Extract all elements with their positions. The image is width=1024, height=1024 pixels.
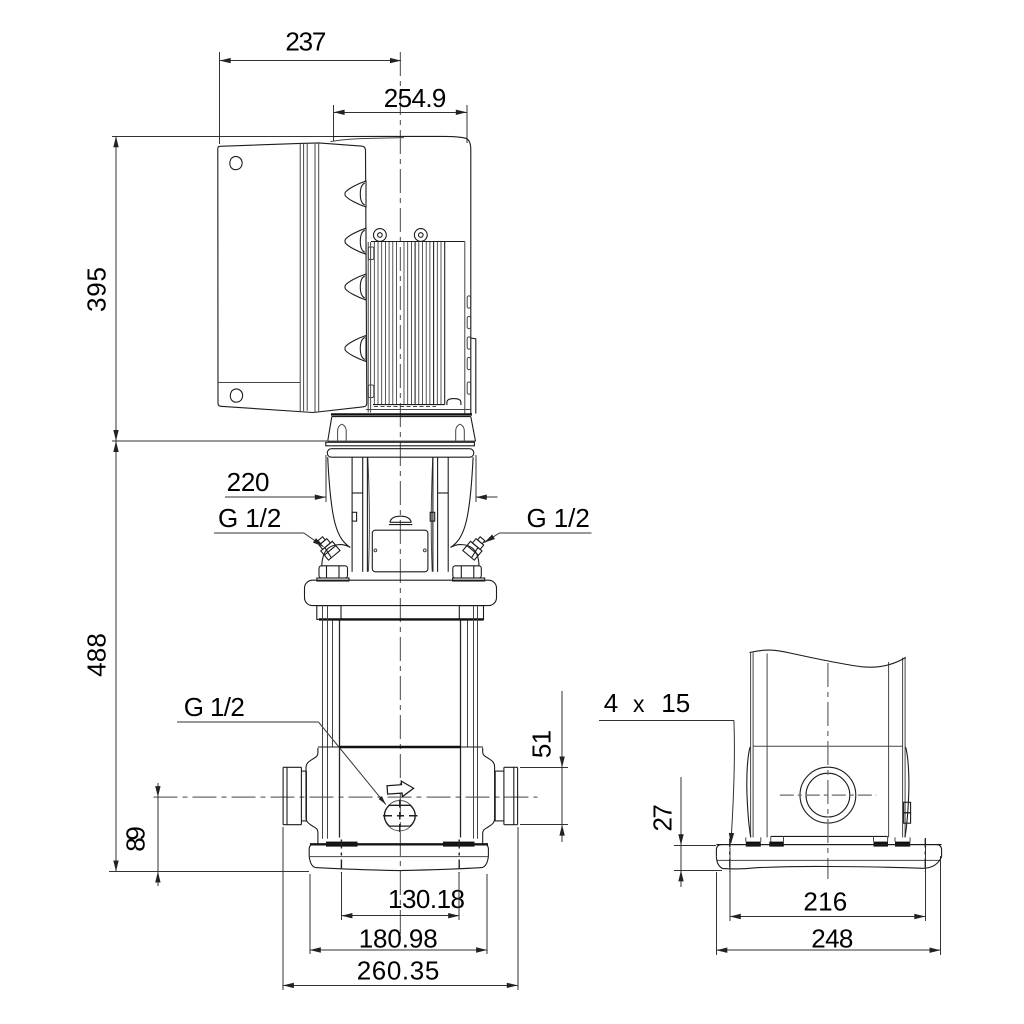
svg-text:260.35: 260.35: [357, 956, 440, 986]
svg-text:15: 15: [661, 688, 690, 718]
svg-text:130.18: 130.18: [388, 884, 465, 914]
svg-text:488: 488: [82, 633, 112, 677]
svg-text:89: 89: [121, 826, 151, 852]
svg-text:4: 4: [604, 688, 618, 718]
svg-text:220: 220: [227, 467, 270, 497]
svg-text:x: x: [633, 691, 645, 717]
svg-text:G 1/2: G 1/2: [218, 503, 281, 533]
svg-text:180.98: 180.98: [359, 924, 438, 954]
svg-text:G 1/2: G 1/2: [527, 503, 590, 533]
svg-text:237: 237: [285, 27, 326, 57]
svg-text:248: 248: [811, 924, 853, 954]
svg-text:51: 51: [527, 730, 557, 758]
svg-text:G 1/2: G 1/2: [184, 692, 245, 722]
svg-text:254.9: 254.9: [384, 83, 447, 113]
svg-text:216: 216: [803, 887, 847, 917]
svg-text:395: 395: [82, 267, 112, 312]
svg-text:27: 27: [648, 804, 678, 831]
